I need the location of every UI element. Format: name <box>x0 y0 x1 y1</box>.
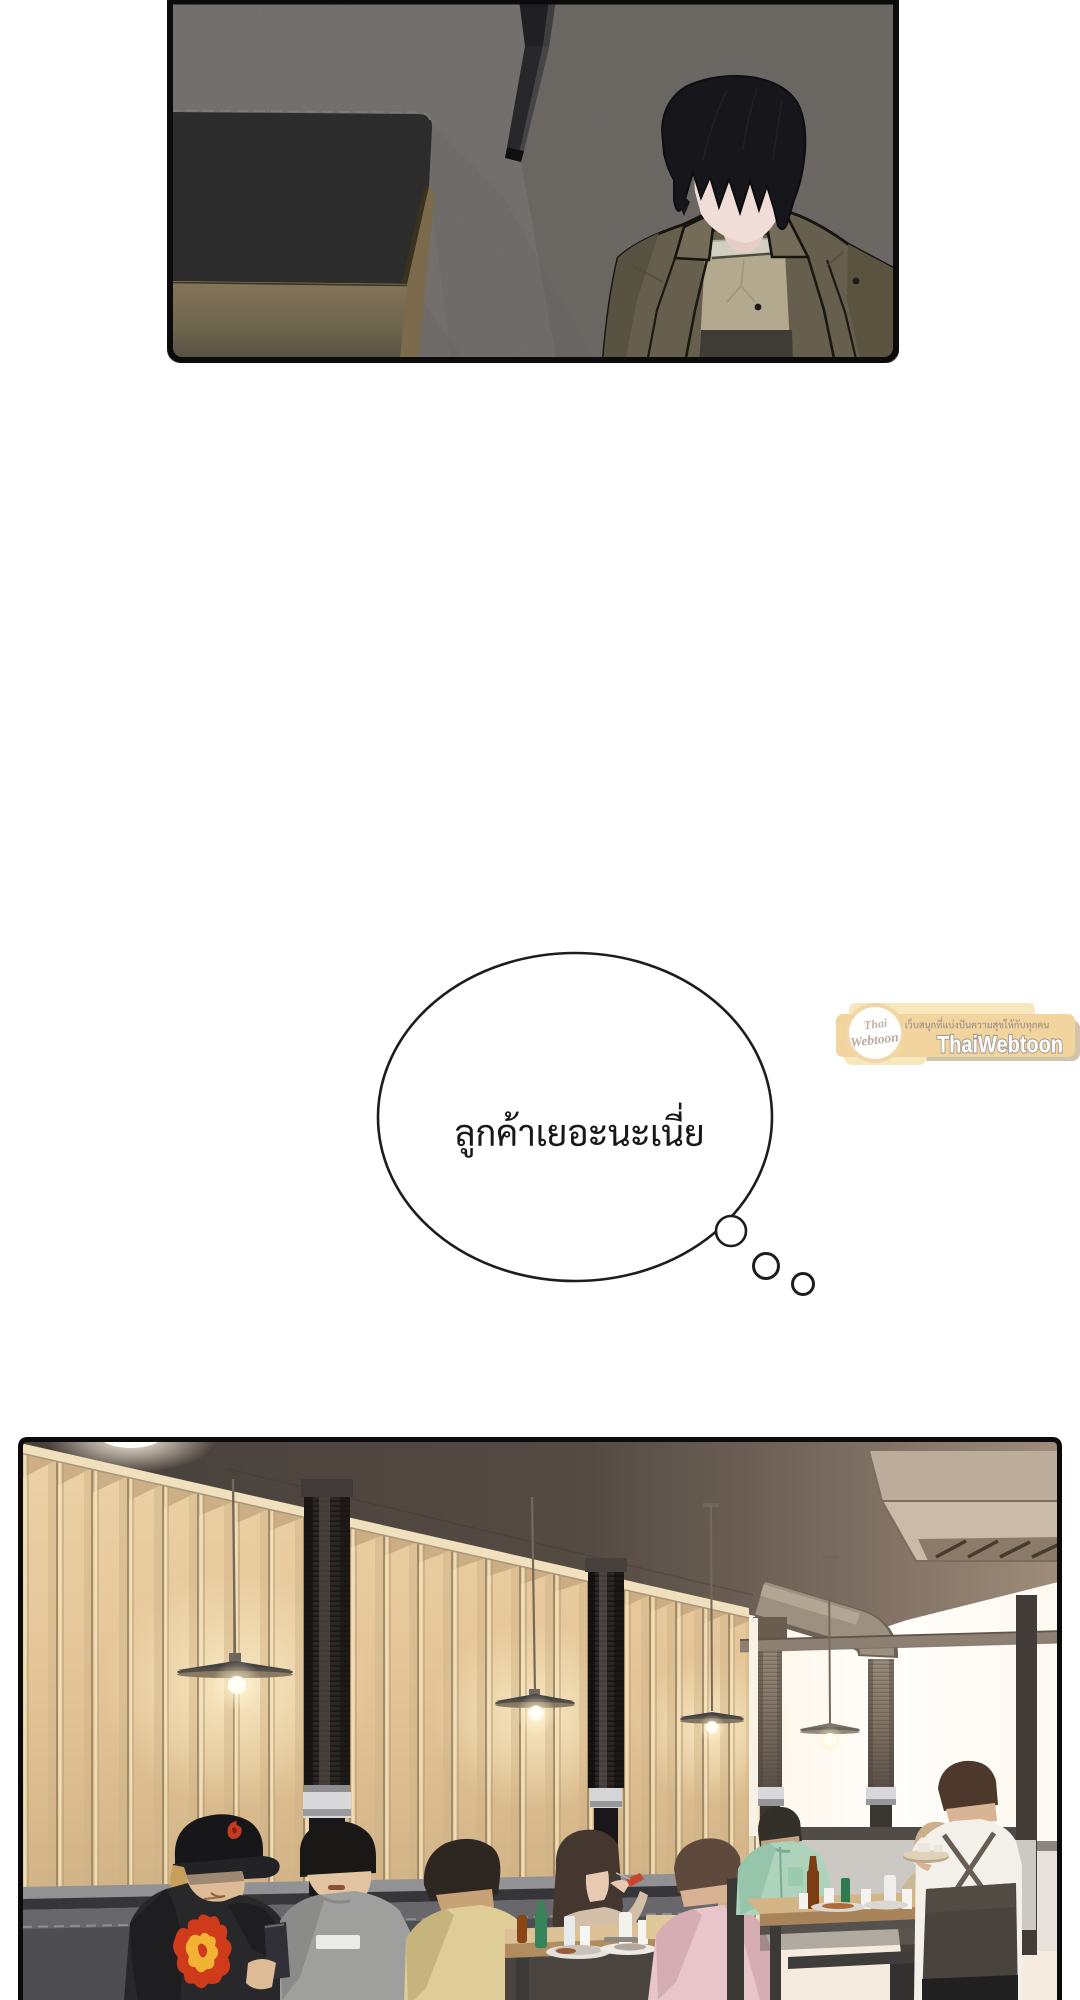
svg-text:ThaiWebtoon: ThaiWebtoon <box>937 1032 1063 1059</box>
